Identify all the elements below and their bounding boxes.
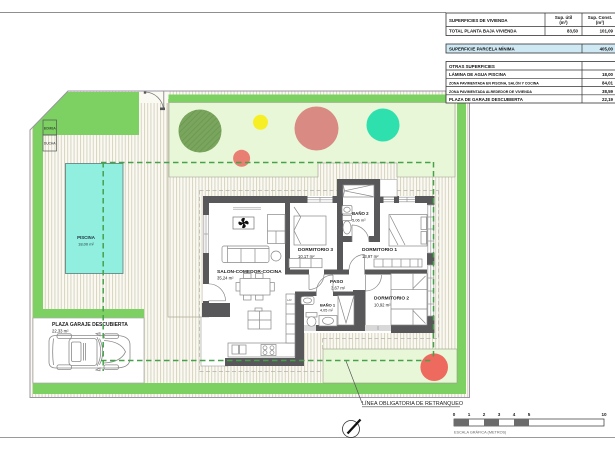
svg-text:PISCINA: PISCINA: [77, 235, 96, 240]
svg-text:DORMITORIO 2: DORMITORIO 2: [374, 296, 409, 302]
svg-text:ESCALA GRÁFICA (METROS): ESCALA GRÁFICA (METROS): [454, 431, 507, 435]
svg-text:LÁMINA DE AGUA PISCINA: LÁMINA DE AGUA PISCINA: [449, 72, 507, 77]
svg-text:405,00: 405,00: [600, 47, 614, 52]
svg-text:101,09: 101,09: [600, 29, 614, 34]
svg-text:4,05 m²: 4,05 m²: [320, 309, 334, 313]
svg-text:22,33 m²: 22,33 m²: [52, 329, 69, 334]
svg-text:5,06 m²: 5,06 m²: [352, 218, 366, 223]
svg-text:10,92 m²: 10,92 m²: [374, 303, 391, 308]
svg-text:DUCHA: DUCHA: [44, 142, 57, 146]
svg-text:DORMITORIO 1: DORMITORIO 1: [362, 247, 397, 253]
svg-text:LÍNEA OBLIGATORIA DE RETRANQUE: LÍNEA OBLIGATORIA DE RETRANQUEO: [362, 400, 463, 407]
svg-text:84,01: 84,01: [602, 81, 614, 86]
svg-text:LAV: LAV: [287, 298, 292, 302]
svg-text:1: 1: [468, 412, 471, 417]
svg-text:(m²): (m²): [596, 20, 605, 25]
svg-text:(m²): (m²): [559, 20, 568, 25]
svg-text:OTRAS SUPERFICIES: OTRAS SUPERFICIES: [449, 64, 495, 69]
svg-text:TOTAL PLANTA BAJA VIVIENDA: TOTAL PLANTA BAJA VIVIENDA: [449, 29, 517, 34]
svg-text:PASO: PASO: [330, 279, 344, 285]
svg-text:BAÑO 1: BAÑO 1: [320, 303, 336, 308]
svg-text:PLAZA GARAJE DESCUBIERTA: PLAZA GARAJE DESCUBIERTA: [52, 322, 128, 328]
svg-text:ZONA PAVIMENTADA EN PISCINA, S: ZONA PAVIMENTADA EN PISCINA, SALÓN Y COC…: [449, 81, 539, 86]
svg-text:3: 3: [498, 412, 501, 417]
svg-text:SUPERFICIE PARCELA MÍNIMA: SUPERFICIE PARCELA MÍNIMA: [449, 47, 515, 52]
svg-text:5: 5: [528, 412, 531, 417]
svg-text:22,19: 22,19: [602, 97, 614, 102]
svg-text:PLAZA DE GARAJE DESCUBIERTA: PLAZA DE GARAJE DESCUBIERTA: [449, 97, 524, 102]
svg-text:4: 4: [513, 412, 516, 417]
svg-text:13,97 m²: 13,97 m²: [362, 254, 379, 259]
svg-text:18,00: 18,00: [602, 72, 614, 77]
svg-text:2: 2: [483, 412, 486, 417]
svg-text:DORMITORIO 3: DORMITORIO 3: [298, 247, 333, 253]
svg-text:83,50: 83,50: [567, 29, 579, 34]
svg-text:18,00 m²: 18,00 m²: [78, 242, 94, 247]
svg-text:10: 10: [601, 412, 607, 417]
svg-text:0: 0: [453, 412, 456, 417]
svg-text:SUPERFICIES DE VIVIENDA: SUPERFICIES DE VIVIENDA: [449, 18, 508, 23]
svg-text:ZONA PAVIMENTADA ALREDEDOR DE: ZONA PAVIMENTADA ALREDEDOR DE VIVIENDA: [449, 90, 532, 94]
svg-text:BAÑO 2: BAÑO 2: [352, 211, 369, 216]
svg-text:35,24 m²: 35,24 m²: [217, 276, 234, 281]
svg-text:BOMBA: BOMBA: [44, 127, 57, 131]
svg-text:38,59: 38,59: [602, 89, 614, 94]
